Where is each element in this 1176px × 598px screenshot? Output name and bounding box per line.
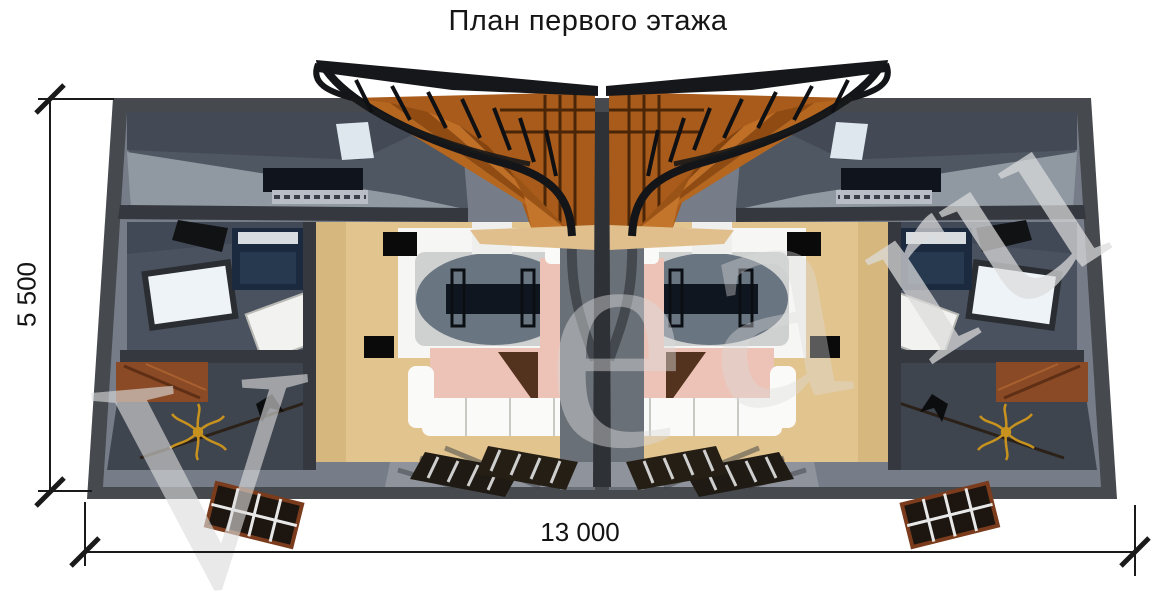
floor-plan-canvas: V e a ru План первого этажа 5 500 13 000 bbox=[0, 0, 1176, 598]
watermark-fragment: V bbox=[82, 302, 335, 598]
floor-plan-rendering: V e a ru bbox=[0, 0, 1176, 598]
watermark-fragment: e bbox=[545, 161, 687, 515]
dimension-width-label: 13 000 bbox=[497, 517, 663, 548]
dimension-height-label: 5 500 bbox=[12, 239, 43, 351]
speaker-icon bbox=[364, 336, 394, 358]
page-title: План первого этажа bbox=[0, 5, 1176, 38]
skylight bbox=[336, 122, 374, 160]
speaker-icon bbox=[383, 232, 417, 256]
